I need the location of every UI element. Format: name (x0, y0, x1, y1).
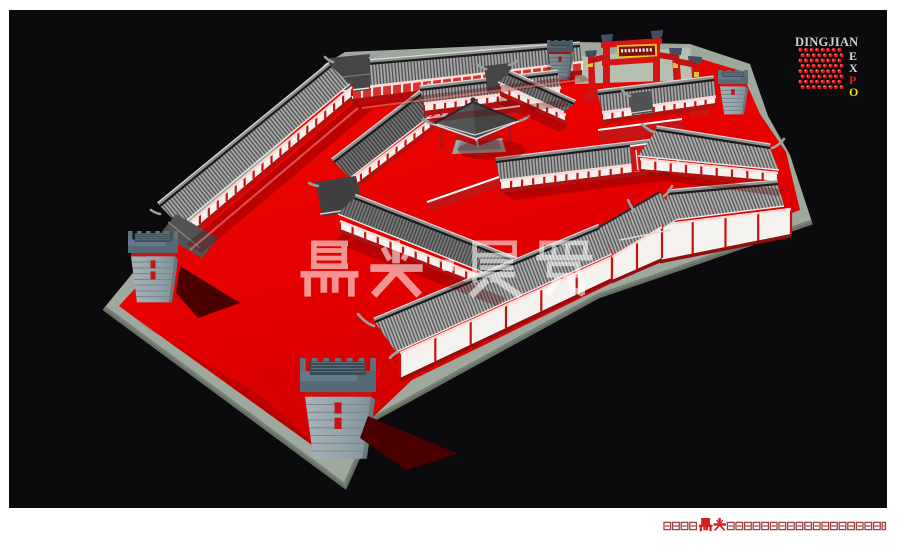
svg-text:DINGJIAN: DINGJIAN (795, 35, 858, 49)
svg-text:O: O (849, 85, 858, 99)
